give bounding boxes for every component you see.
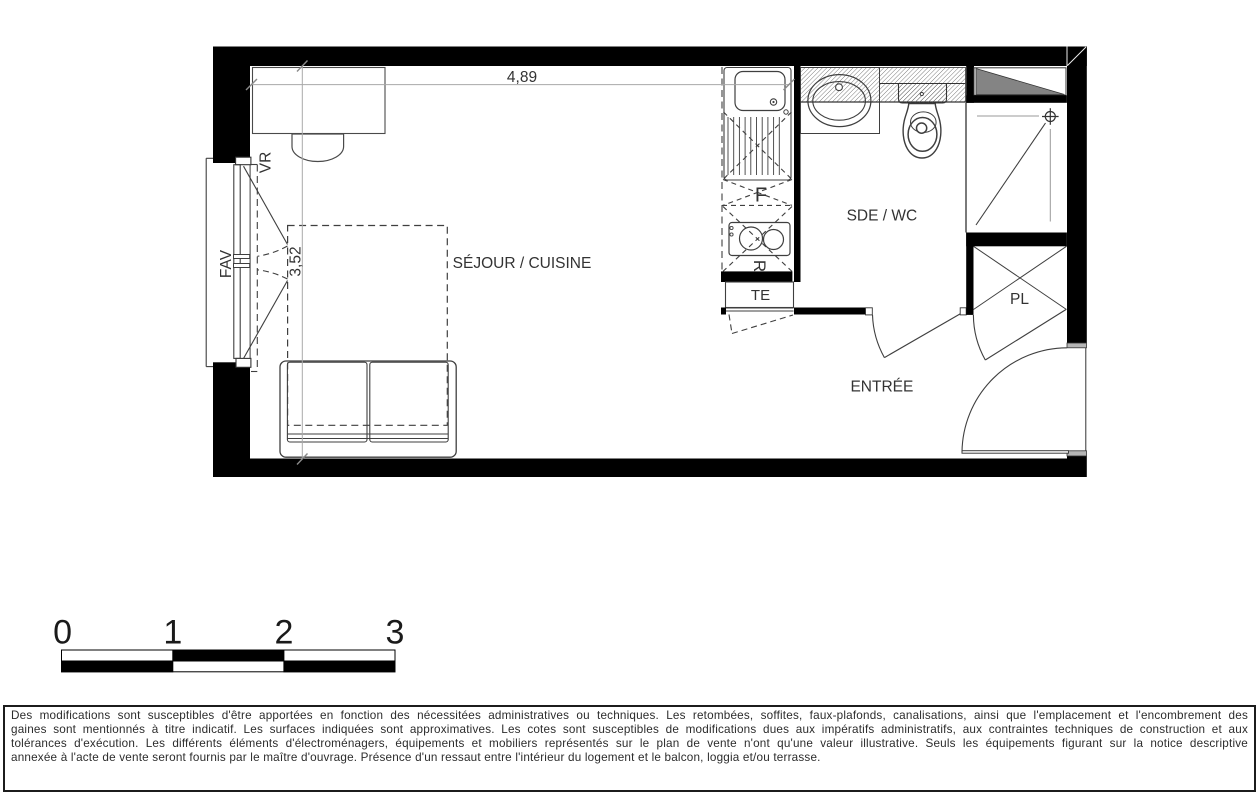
svg-text:ENTRÉE: ENTRÉE	[850, 379, 913, 396]
svg-text:4,89: 4,89	[507, 69, 537, 86]
svg-text:3,52: 3,52	[288, 246, 305, 276]
svg-text:2: 2	[275, 614, 294, 652]
svg-text:TE: TE	[751, 287, 770, 304]
svg-text:F: F	[755, 185, 767, 207]
svg-text:SDE / WC: SDE / WC	[847, 208, 918, 225]
svg-text:1: 1	[163, 614, 182, 652]
svg-text:VR: VR	[258, 152, 275, 174]
svg-text:0: 0	[53, 614, 72, 652]
svg-text:FAV: FAV	[218, 249, 235, 278]
svg-text:SÉJOUR / CUISINE: SÉJOUR / CUISINE	[453, 255, 592, 272]
svg-text:R: R	[750, 260, 769, 272]
svg-text:3: 3	[386, 614, 405, 652]
svg-text:PL: PL	[1010, 291, 1029, 308]
